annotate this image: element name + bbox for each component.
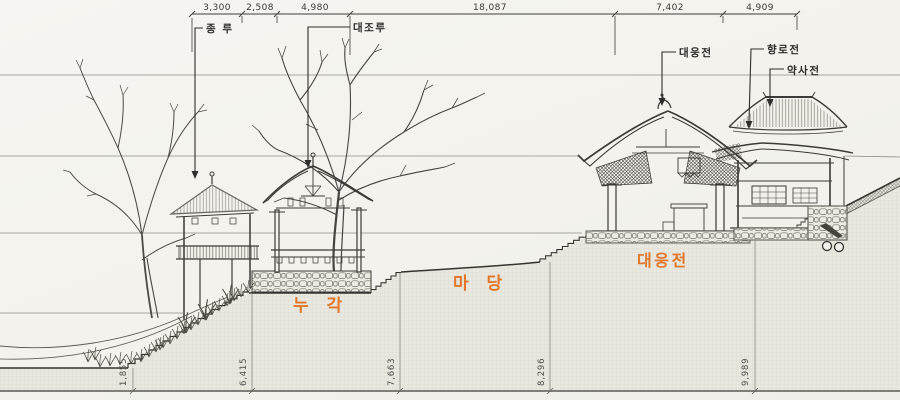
top-dimension-label-2: 2,508 — [246, 3, 274, 13]
area-label-nugak: 누 각 — [293, 291, 348, 316]
terrain — [0, 178, 900, 391]
top-dimension-label-5: 7,402 — [656, 3, 684, 13]
left-tree — [63, 59, 207, 318]
center-tree — [252, 38, 485, 272]
main-hall-daeungjeon — [578, 94, 757, 232]
building-label-daejoru: 대조루 — [353, 20, 386, 35]
top-dimension-label-1: 3,300 — [203, 3, 231, 13]
building-label-yaksajeon: 약사전 — [787, 63, 820, 78]
top-dimension-label-3: 4,980 — [301, 3, 329, 13]
level-label-4: 8,296 — [537, 358, 547, 386]
section-drawing-svg — [0, 0, 900, 400]
level-label-2: 6,415 — [239, 358, 249, 386]
level-label-1: 1,855 — [119, 358, 129, 386]
temple-section-drawing: 3,300 2,508 4,980 18,087 7,402 4,909 종 루… — [0, 0, 900, 400]
building-label-jongru: 종 루 — [206, 21, 233, 36]
area-label-daeungjeon: 대웅전 — [637, 247, 689, 271]
pavilion-nugak — [252, 153, 373, 292]
top-dimension-label-4: 18,087 — [473, 3, 507, 13]
level-label-3: 7,663 — [387, 358, 397, 386]
building-label-daeungjeon: 대웅전 — [679, 45, 712, 60]
area-label-madang: 마 당 — [453, 269, 508, 294]
level-label-5: 9,989 — [741, 358, 751, 386]
building-label-hyangnojeon: 향로전 — [767, 42, 800, 57]
top-dimension-label-6: 4,909 — [746, 3, 774, 13]
